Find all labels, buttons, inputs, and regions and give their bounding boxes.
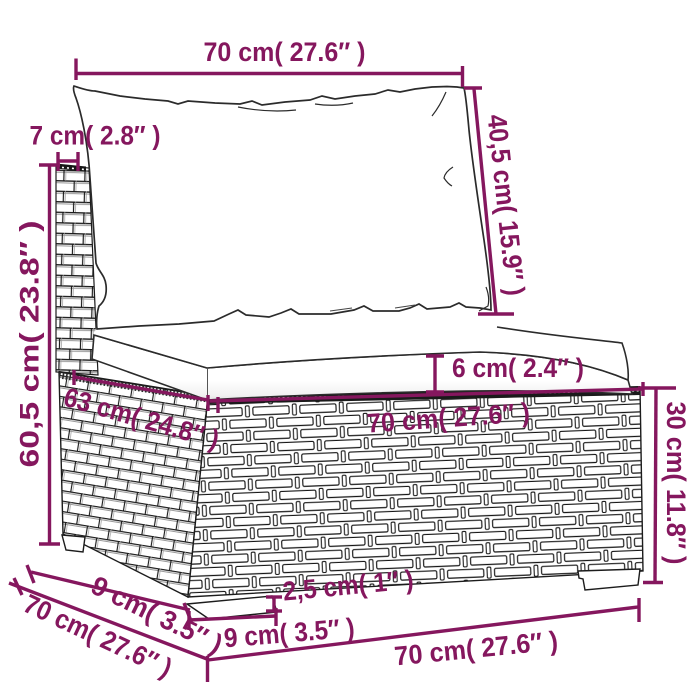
svg-text:7 cm( 2.8″ ): 7 cm( 2.8″ ) bbox=[30, 121, 161, 151]
svg-text:60,5 cm( 23.8″ ): 60,5 cm( 23.8″ ) bbox=[15, 221, 45, 468]
svg-text:6 cm( 2.4″ ): 6 cm( 2.4″ ) bbox=[452, 353, 584, 383]
svg-text:30 cm( 11.8″ ): 30 cm( 11.8″ ) bbox=[661, 402, 691, 565]
svg-text:70 cm( 27.6″ ): 70 cm( 27.6″ ) bbox=[204, 37, 366, 67]
